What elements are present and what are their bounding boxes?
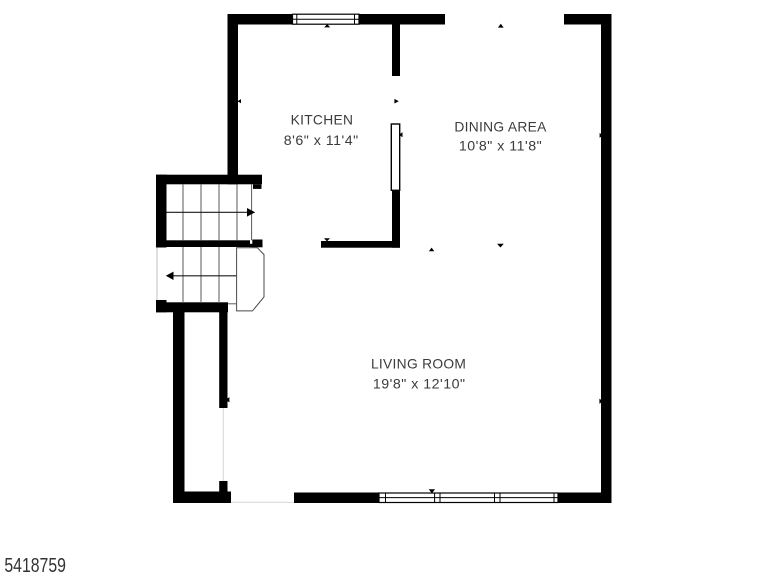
svg-text:8'6" x 11'4": 8'6" x 11'4" — [284, 133, 359, 149]
svg-text:DINING AREA: DINING AREA — [454, 119, 547, 134]
svg-text:5418759: 5418759 — [4, 554, 66, 576]
svg-text:10'8" x 11'8": 10'8" x 11'8" — [459, 139, 542, 155]
svg-text:KITCHEN: KITCHEN — [291, 113, 354, 128]
svg-text:19'8" x 12'10": 19'8" x 12'10" — [373, 377, 466, 393]
svg-text:LIVING ROOM: LIVING ROOM — [371, 357, 466, 372]
